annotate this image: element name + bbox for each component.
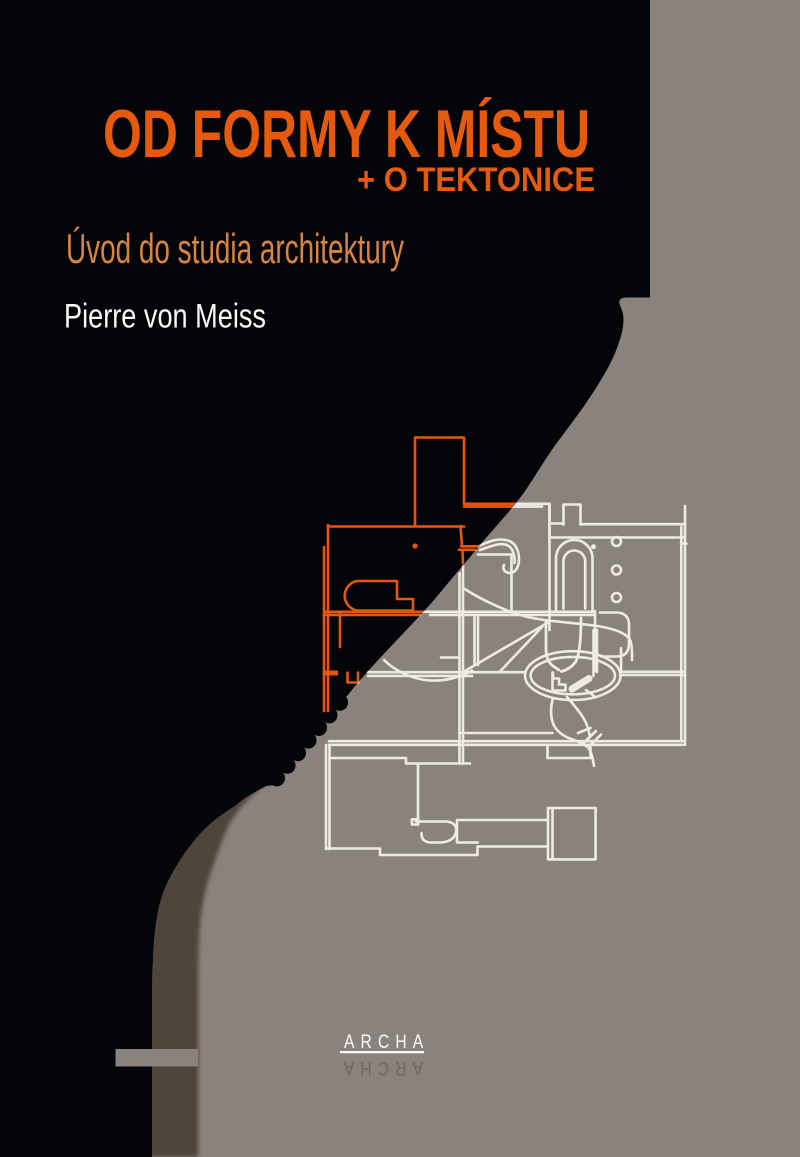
svg-text:Pierre von Meiss: Pierre von Meiss xyxy=(64,298,266,336)
svg-text:Úvod do studia architektury: Úvod do studia architektury xyxy=(66,225,404,272)
svg-text:+ O TEKTONICE: + O TEKTONICE xyxy=(357,161,595,199)
